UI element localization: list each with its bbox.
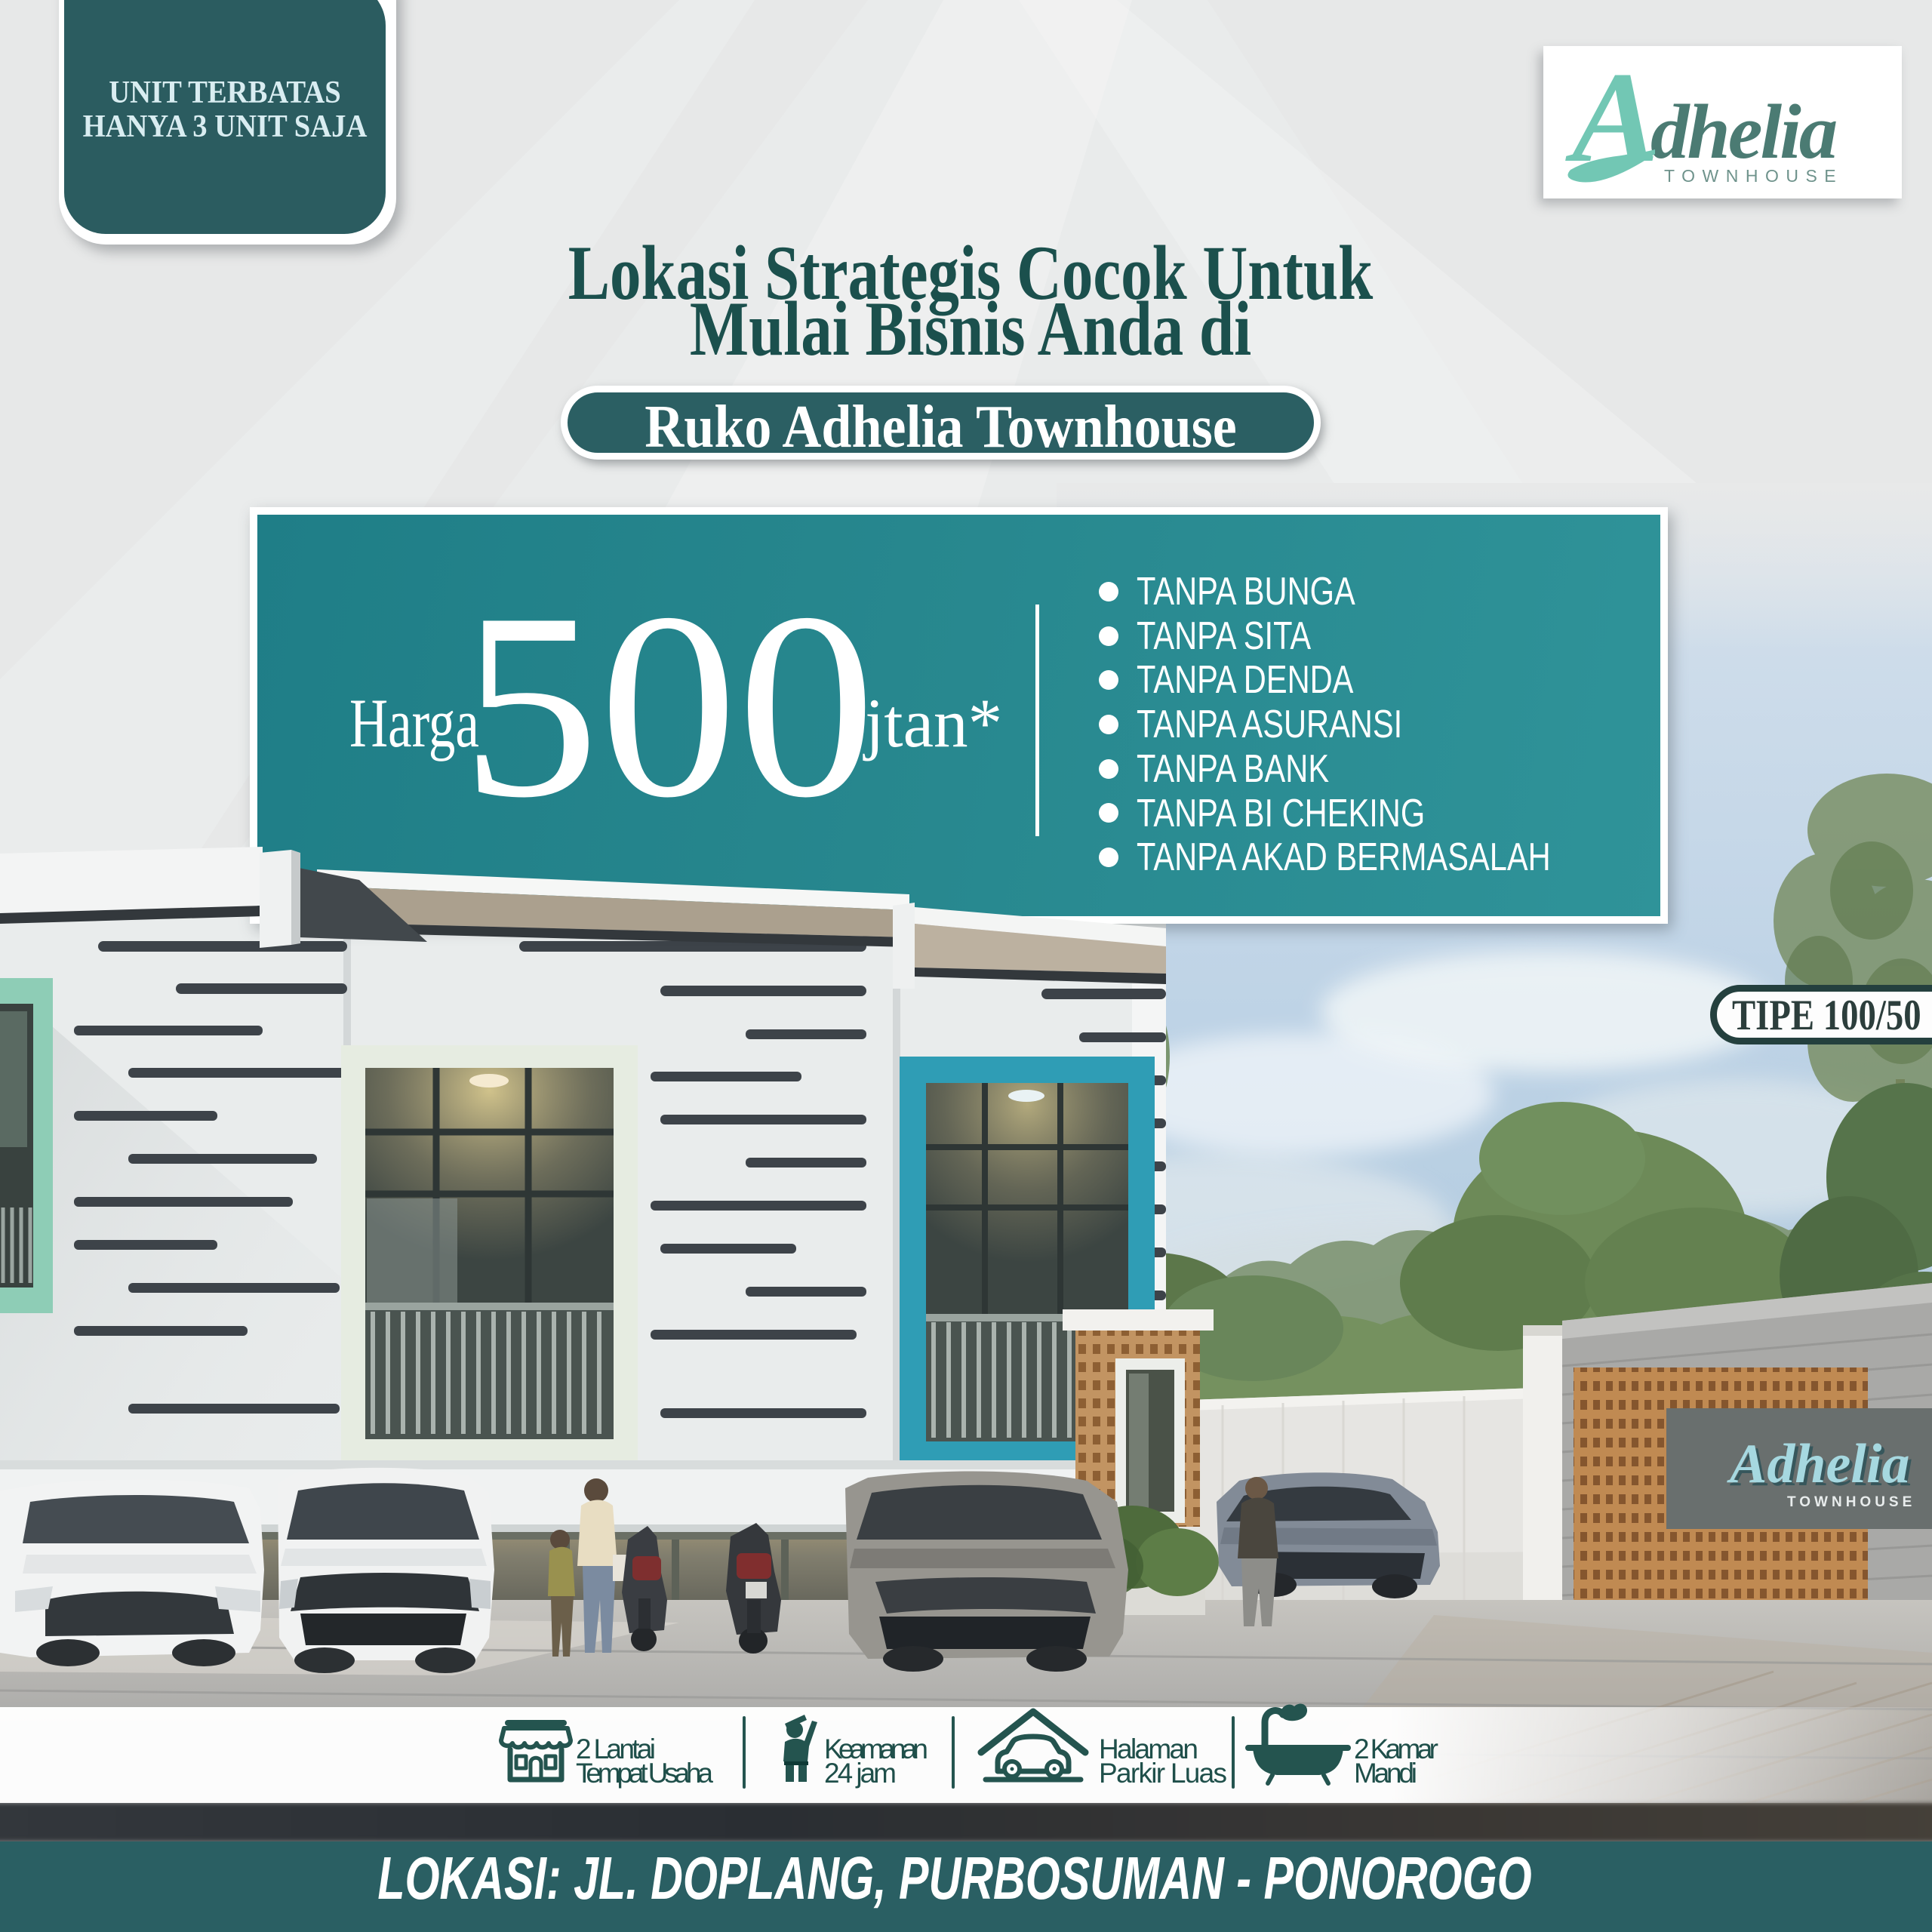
svg-text:Tempat Usaha: Tempat Usaha	[576, 1758, 713, 1789]
svg-text:Parkir Luas: Parkir Luas	[1099, 1758, 1227, 1789]
svg-text:24 jam: 24 jam	[824, 1758, 897, 1789]
svg-text:Mandi: Mandi	[1354, 1758, 1417, 1789]
